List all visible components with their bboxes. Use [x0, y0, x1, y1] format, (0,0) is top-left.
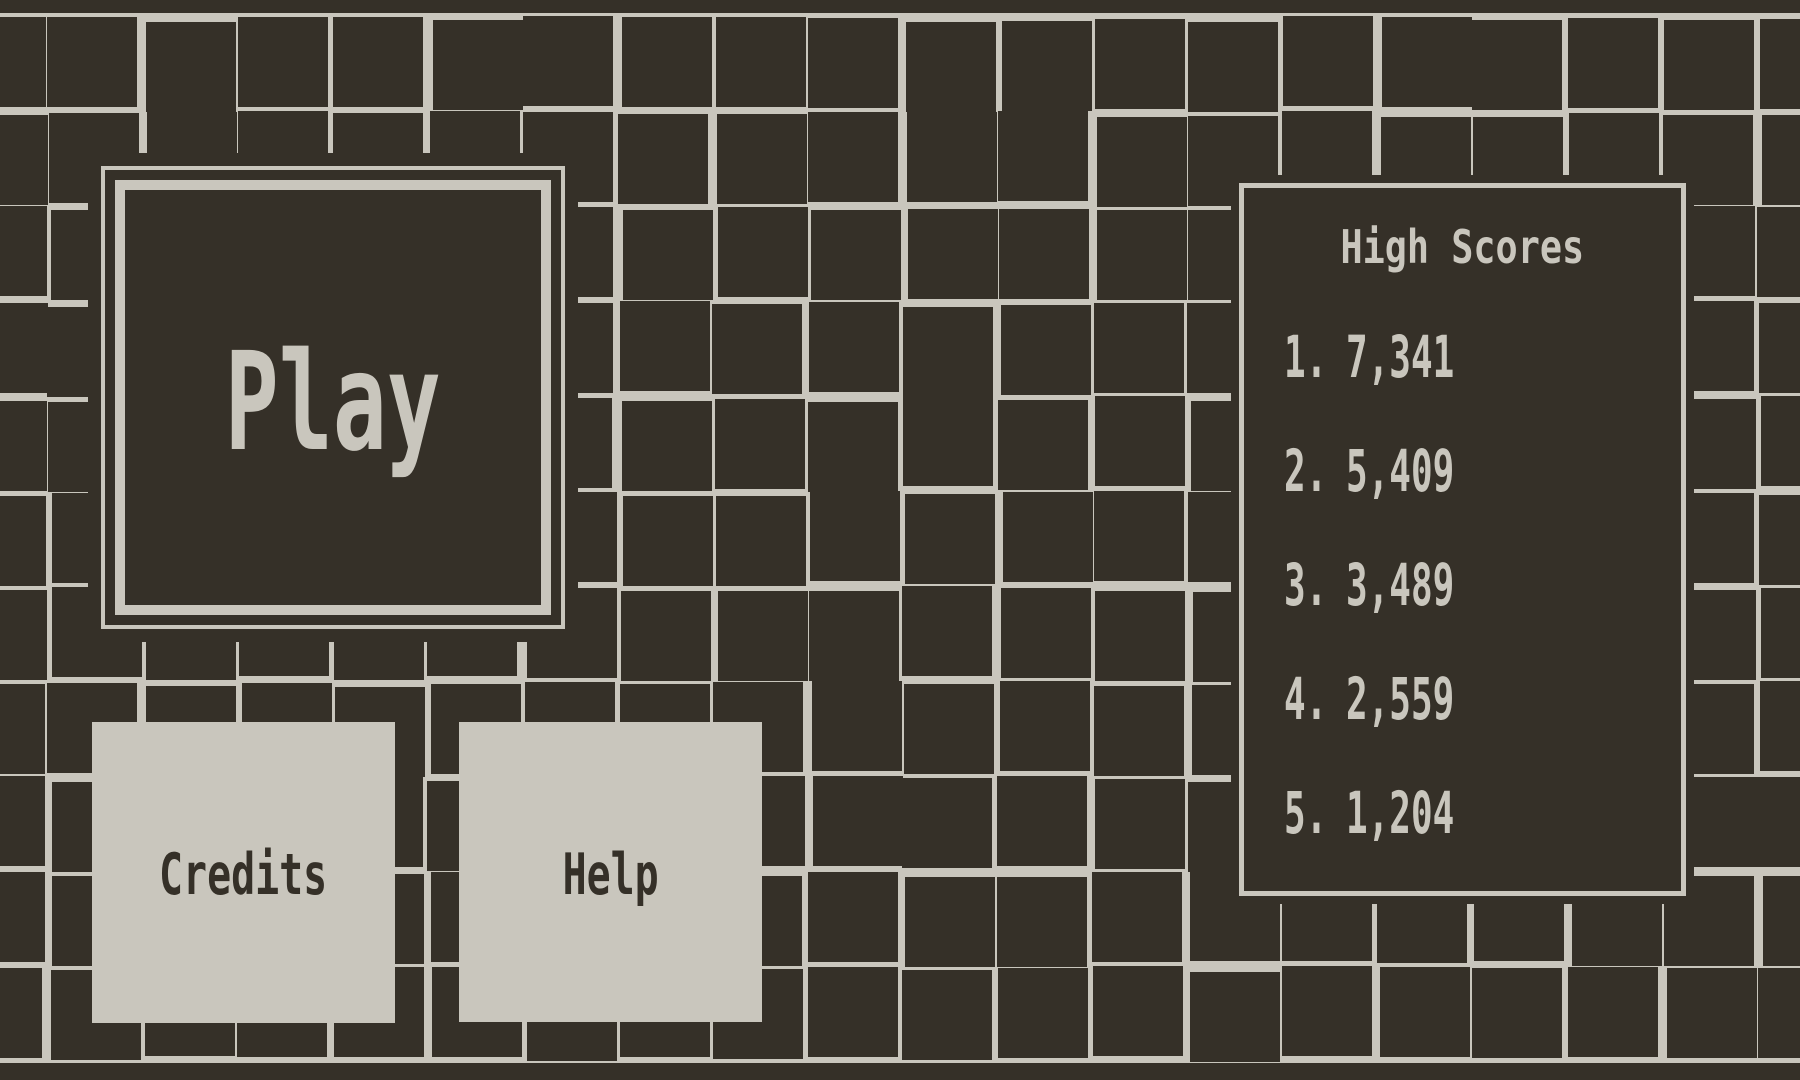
high-score-value: 2,559 — [1346, 670, 1454, 728]
grid-tile — [1568, 18, 1658, 108]
grid-tile — [903, 396, 993, 486]
grid-tile — [813, 776, 903, 866]
grid-tile — [1762, 115, 1800, 205]
grid-tile — [997, 776, 1087, 866]
grid-tile — [718, 207, 808, 297]
grid-tile — [1760, 19, 1800, 109]
grid-tile — [433, 20, 523, 110]
high-score-entry: 3. 3,489 — [1284, 528, 1681, 642]
grid-tile — [238, 17, 328, 107]
grid-tile — [1664, 20, 1754, 110]
grid-tile — [903, 307, 993, 397]
grid-tile — [146, 22, 236, 112]
grid-tile — [0, 872, 45, 962]
grid-tile — [1097, 117, 1187, 207]
grid-tile — [1757, 207, 1800, 297]
grid-tile — [715, 399, 805, 489]
grid-tile — [905, 494, 995, 584]
grid-tile — [808, 112, 898, 202]
grid-tile — [0, 496, 46, 586]
grid-tile — [0, 590, 47, 680]
grid-tile — [1472, 20, 1562, 110]
high-score-entry: 1. 7,341 — [1284, 300, 1681, 414]
credits-button[interactable]: Credits — [92, 722, 395, 1023]
grid-tile — [1758, 777, 1800, 867]
high-score-entry: 5. 1,204 — [1284, 756, 1681, 870]
grid-tile — [1097, 210, 1187, 300]
high-score-value: 3,489 — [1346, 556, 1454, 614]
high-score-value: 7,341 — [1346, 328, 1454, 386]
grid-tile — [1763, 876, 1800, 966]
play-button-label: Play — [225, 335, 441, 471]
grid-tile — [1282, 966, 1372, 1056]
grid-tile — [808, 18, 898, 108]
grid-tile — [1761, 588, 1800, 678]
grid-tile — [906, 22, 996, 112]
grid-tile — [999, 209, 1089, 299]
grid-tile — [1001, 588, 1091, 678]
high-score-rank: 4. — [1284, 670, 1327, 728]
high-score-rank: 2. — [1284, 442, 1327, 500]
grid-tile — [333, 17, 423, 107]
high-score-value: 1,204 — [1346, 784, 1454, 842]
grid-tile — [997, 877, 1087, 967]
play-button[interactable]: Play — [101, 166, 565, 629]
grid-tile — [812, 681, 902, 771]
grid-tile — [808, 402, 898, 492]
grid-tile — [998, 400, 1088, 490]
high-score-value: 5,409 — [1346, 442, 1454, 500]
grid-tile — [1093, 966, 1183, 1056]
grid-tile — [809, 591, 899, 681]
grid-tile — [717, 114, 807, 204]
grid-tile — [1002, 21, 1092, 111]
help-button-label: Help — [562, 847, 658, 904]
grid-tile — [621, 591, 711, 681]
high-scores-list: 1. 7,341 2. 5,409 3. 3,489 4. 2,559 5. — [1284, 300, 1681, 870]
grid-tile — [716, 17, 806, 107]
grid-tile — [622, 401, 712, 491]
grid-tile — [618, 114, 708, 204]
grid-tile — [1190, 972, 1280, 1062]
grid-tile — [1094, 491, 1184, 581]
high-scores-zone: High Scores 1. 7,341 2. 5,409 3. 3,489 4… — [1231, 175, 1694, 904]
credits-button-label: Credits — [159, 847, 327, 904]
grid-tile — [1095, 779, 1185, 869]
grid-tile — [1095, 19, 1185, 109]
grid-tile — [1472, 968, 1562, 1058]
grid-tile — [1094, 303, 1184, 393]
grid-tile — [902, 586, 992, 676]
grid-tile — [902, 970, 992, 1060]
grid-tile — [810, 491, 900, 581]
grid-tile — [1095, 396, 1185, 486]
grid-tile — [0, 303, 48, 393]
high-scores-title: High Scores — [1244, 219, 1681, 275]
grid-tile — [1095, 591, 1185, 681]
high-score-rank: 3. — [1284, 556, 1327, 614]
grid-tile — [905, 877, 995, 967]
grid-tile — [1758, 968, 1800, 1058]
grid-tile — [716, 496, 806, 586]
play-button-inner-frame: Play — [115, 180, 551, 615]
grid-tile — [808, 872, 898, 962]
grid-tile — [718, 591, 808, 681]
grid-tile — [623, 210, 713, 300]
grid-tile — [523, 16, 613, 106]
grid-tile — [907, 112, 997, 202]
grid-tile — [908, 209, 998, 299]
grid-tile — [1667, 968, 1757, 1058]
game-menu-screen: Play Credits Help High Scores 1. 7,341 2… — [0, 0, 1800, 1080]
grid-tile — [0, 776, 45, 866]
grid-tile — [998, 968, 1088, 1058]
grid-tile — [0, 968, 42, 1058]
high-score-rank: 1. — [1284, 328, 1327, 386]
grid-tile — [0, 115, 48, 205]
play-button-zone: Play — [88, 153, 578, 642]
grid-tile — [47, 17, 137, 107]
grid-tile — [1759, 303, 1800, 393]
grid-tile — [623, 496, 713, 586]
grid-tile — [1092, 872, 1182, 962]
grid-tile — [0, 17, 46, 107]
help-button[interactable]: Help — [459, 722, 762, 1022]
grid-tile — [1380, 967, 1470, 1057]
grid-tile — [1094, 686, 1184, 776]
grid-tile — [1001, 305, 1091, 395]
grid-tile — [809, 302, 899, 392]
high-score-entry: 2. 5,409 — [1284, 414, 1681, 528]
high-score-entry: 4. 2,559 — [1284, 642, 1681, 756]
grid-tile — [1759, 495, 1800, 585]
grid-tile — [904, 684, 994, 774]
grid-tile — [622, 17, 712, 107]
grid-tile — [620, 301, 710, 391]
grid-tile — [808, 967, 898, 1057]
grid-tile — [1568, 967, 1658, 1057]
grid-top-band — [0, 0, 1800, 13]
high-scores-panel: High Scores 1. 7,341 2. 5,409 3. 3,489 4… — [1239, 183, 1686, 896]
grid-bottom-band — [0, 1063, 1800, 1080]
grid-tile — [0, 206, 47, 296]
grid-tile — [0, 401, 47, 491]
grid-tile — [1382, 17, 1472, 107]
high-score-rank: 5. — [1284, 784, 1327, 842]
grid-tile — [1188, 22, 1278, 112]
grid-tile — [712, 304, 802, 394]
grid-tile — [902, 778, 992, 868]
grid-tile — [1760, 681, 1800, 771]
grid-tile — [998, 111, 1088, 201]
grid-tile — [811, 210, 901, 300]
grid-tile — [1283, 16, 1373, 106]
grid-tile — [1003, 492, 1093, 582]
grid-tile — [1761, 396, 1800, 486]
grid-tile — [0, 684, 45, 774]
grid-tile — [1000, 681, 1090, 771]
